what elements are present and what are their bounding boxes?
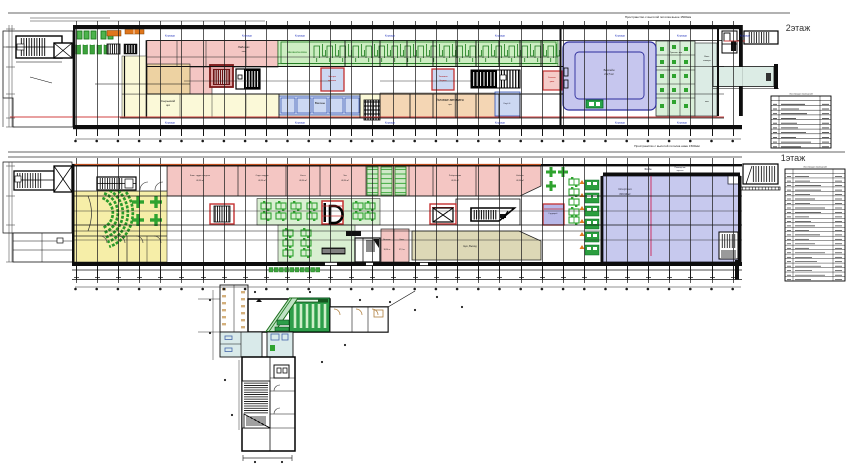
svg-text:узлы: узлы: [550, 81, 555, 83]
svg-text:Отдел кадров: Отдел кадров: [256, 175, 269, 177]
svg-text:Бассейн: Бассейн: [604, 68, 615, 72]
svg-text:38,96 м²: 38,96 м²: [384, 248, 391, 251]
svg-text:пом.: пом.: [705, 101, 710, 103]
svg-text:Коридор: Коридор: [677, 33, 688, 37]
svg-text:Узловые автоматы: Узловые автоматы: [436, 98, 465, 102]
svg-text:Коридор: Коридор: [495, 33, 506, 37]
svg-text:Экспликация помещений: Экспликация помещений: [803, 166, 826, 169]
svg-text:48,96 м²: 48,96 м²: [451, 179, 459, 182]
svg-text:37,9 м²: 37,9 м²: [399, 248, 405, 251]
svg-text:Тепловая: Тепловая: [439, 76, 448, 78]
svg-text:Коридор: Коридор: [740, 33, 751, 37]
svg-text:Цех, Выход: Цех, Выход: [463, 245, 477, 248]
svg-text:Помещение: Помещение: [674, 167, 686, 169]
svg-text:2этаж: 2этаж: [786, 23, 810, 33]
svg-text:Электро: Электро: [328, 76, 337, 78]
svg-text:Вагоны: Вагоны: [315, 101, 325, 105]
svg-text:48,96 м²: 48,96 м²: [341, 179, 349, 182]
svg-text:Лаборат.: Лаборат.: [238, 45, 250, 49]
svg-text:Венткам.: Венткам.: [383, 239, 391, 241]
svg-text:Фойе: Фойе: [644, 167, 652, 171]
svg-text:Сантехн.: Сантехн.: [548, 77, 557, 79]
svg-text:камера: камера: [703, 60, 711, 62]
svg-text:Коридор: Коридор: [385, 120, 396, 124]
svg-text:Экспликация помещений: Экспликация помещений: [789, 93, 812, 96]
svg-text:212,5 м²: 212,5 м²: [604, 73, 614, 76]
svg-text:Коридор: Коридор: [295, 120, 306, 124]
svg-text:48,96 м²: 48,96 м²: [258, 179, 266, 182]
svg-text:Пространство с высотой потолка: Пространство с высотой потолка выше 1500…: [625, 15, 691, 19]
svg-text:Спортзал: Спортзал: [618, 187, 631, 191]
svg-text:Вент.: Вент.: [704, 56, 710, 58]
svg-text:щитовая: щитовая: [328, 80, 336, 82]
svg-text:Касса: Касса: [300, 175, 306, 177]
svg-text:Коридор: Коридор: [495, 120, 506, 124]
svg-text:Коридор: Коридор: [165, 33, 176, 37]
svg-text:Коридор: Коридор: [165, 120, 176, 124]
svg-text:Комн. труда и отдыха: Комн. труда и отдыха: [190, 175, 211, 177]
svg-text:48,96 м²: 48,96 м²: [299, 179, 307, 182]
svg-text:1этаж: 1этаж: [781, 153, 805, 163]
svg-text:Тренаж. зал: Тренаж. зал: [670, 52, 683, 54]
svg-text:Клуб 4: Клуб 4: [504, 103, 512, 105]
svg-text:Лаборатория: Лаборатория: [449, 175, 461, 177]
svg-text:Коридор: Коридор: [615, 33, 626, 37]
svg-text:Кабинет: Кабинет: [516, 175, 524, 177]
svg-text:806,96 м²: 806,96 м²: [620, 193, 631, 196]
svg-text:Коридор: Коридор: [295, 33, 306, 37]
svg-text:Коридор: Коридор: [385, 33, 396, 37]
svg-text:Коридор: Коридор: [677, 120, 688, 124]
svg-text:Пространство с высотой потолка: Пространство с высотой потолка ниже 1500…: [634, 144, 699, 148]
svg-text:охраны: охраны: [677, 170, 684, 172]
svg-text:Комн.: Комн.: [400, 239, 405, 241]
svg-text:Коридор: Коридор: [615, 120, 626, 124]
svg-text:Механические: Механические: [287, 50, 307, 54]
svg-text:№ узел: № узел: [440, 79, 448, 82]
svg-text:48,96 м²: 48,96 м²: [516, 179, 524, 182]
svg-text:48,96 м²: 48,96 м²: [196, 179, 204, 182]
svg-text:Гардероб: Гардероб: [549, 213, 559, 215]
svg-text:пом.: пом.: [242, 51, 247, 53]
svg-text:Коридор: Коридор: [242, 33, 253, 37]
svg-text:Сырьевой: Сырьевой: [161, 99, 175, 103]
